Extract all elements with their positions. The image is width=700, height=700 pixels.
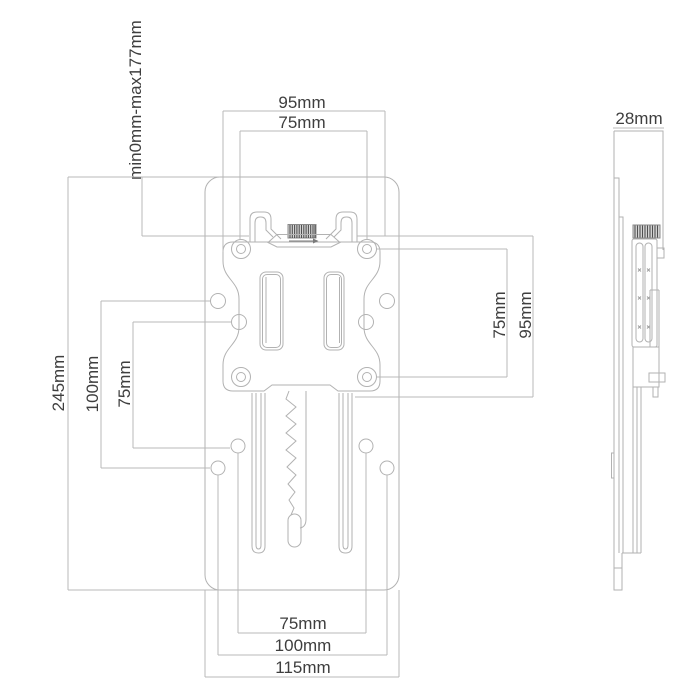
top-hook-right <box>326 212 357 242</box>
dim-label-bottom-75: 75mm <box>279 614 326 633</box>
vesa-mount-drawing: 95mm 75mm min0mm-max177mm 95mm 75mm 245m <box>0 0 700 700</box>
dim-label-left-75: 75mm <box>115 360 134 407</box>
side-extrusion <box>632 239 657 347</box>
dimension-left-245: 245mm <box>49 177 220 590</box>
side-knob <box>633 225 660 238</box>
side-profile <box>612 131 666 590</box>
dimension-left-100: 100mm <box>83 301 210 468</box>
side-hook-profile <box>633 240 665 397</box>
dim-label-side-28: 28mm <box>615 109 662 128</box>
dim-label-bottom-100: 100mm <box>275 636 332 655</box>
technical-drawing: 95mm 75mm min0mm-max177mm 95mm 75mm 245m <box>0 0 700 700</box>
dim-label-left-245: 245mm <box>49 355 68 412</box>
side-view: 28mm <box>612 109 666 590</box>
vesa-adapter-plate <box>223 212 380 391</box>
vesa-screw-holes <box>232 240 377 387</box>
dimension-right-75: 75mm <box>377 249 509 377</box>
dim-label-right-75: 75mm <box>490 291 509 338</box>
dim-label-height-range: min0mm-max177mm <box>126 20 145 180</box>
dimension-left-75: 75mm <box>115 322 231 448</box>
hook-slot-right <box>324 272 344 350</box>
vesa-plate-outline <box>223 242 380 391</box>
dim-label-right-95: 95mm <box>516 291 535 338</box>
dim-label-top-95: 95mm <box>278 93 325 112</box>
tension-knob <box>288 225 316 239</box>
dimension-bottom-75: 75mm <box>238 453 366 633</box>
wall-plate-holes <box>211 294 395 476</box>
front-view: 95mm 75mm min0mm-max177mm 95mm 75mm 245m <box>49 20 535 677</box>
top-hook-left <box>250 212 281 242</box>
guide-rails <box>252 393 352 553</box>
hook-slot-left <box>260 272 283 350</box>
dimension-side-28: 28mm <box>613 109 664 128</box>
dimensions-front: 95mm 75mm min0mm-max177mm 95mm 75mm 245m <box>49 20 535 677</box>
dimension-height-range: min0mm-max177mm <box>126 20 533 236</box>
ratchet-pawl <box>288 514 301 547</box>
dim-label-top-75: 75mm <box>278 113 325 132</box>
dim-label-bottom-115: 115mm <box>275 658 330 677</box>
dim-label-left-100: 100mm <box>83 356 102 413</box>
ratchet-track <box>286 391 306 547</box>
